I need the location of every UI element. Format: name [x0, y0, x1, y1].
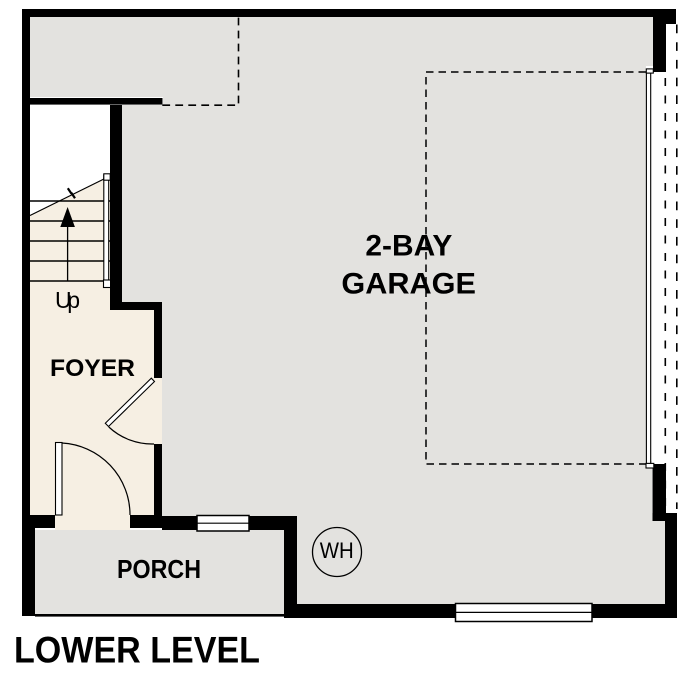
svg-text:PORCH: PORCH — [117, 554, 201, 584]
svg-text:Up: Up — [55, 287, 80, 313]
svg-text:GARAGE: GARAGE — [341, 267, 476, 300]
svg-text:LOWER LEVEL: LOWER LEVEL — [14, 629, 260, 670]
svg-text:WH: WH — [320, 538, 354, 563]
svg-text:2-BAY: 2-BAY — [365, 229, 452, 262]
svg-text:FOYER: FOYER — [50, 355, 135, 382]
